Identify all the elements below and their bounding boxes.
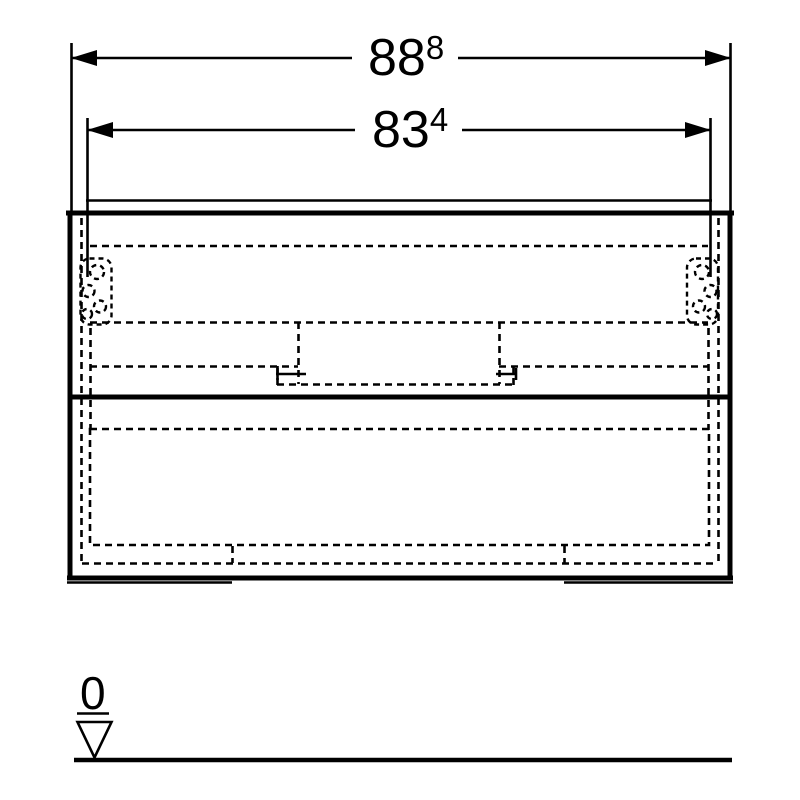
dim-cutout-value: 83	[372, 101, 430, 159]
dim-overall-arrowhead-left	[71, 50, 97, 66]
inner-side-hidden-lines	[82, 218, 719, 563]
runner-left-outline	[81, 259, 112, 325]
upper-drawer-hidden-lines	[90, 246, 708, 385]
drawing-canvas: 888 834 0	[0, 0, 800, 800]
dim-cutout-superscript: 4	[430, 101, 448, 138]
dim-cutout-arrowhead-right	[685, 122, 711, 138]
lower-drawer-box	[90, 429, 709, 545]
drawer-runner-left	[81, 259, 112, 325]
runner-right-roller-4	[707, 309, 717, 319]
dimension-cutout-width: 834	[87, 101, 711, 277]
runner-right-roller-3	[693, 301, 705, 313]
dim-cutout-arrowhead-left	[87, 122, 113, 138]
runner-right-roller-2	[705, 285, 717, 297]
datum-triangle-icon	[78, 722, 112, 758]
cabinet-body	[66, 201, 734, 583]
floor-datum: 0	[74, 667, 732, 760]
dim-overall-superscript: 8	[426, 29, 444, 66]
dim-overall-arrowhead-right	[705, 50, 731, 66]
drawer-runner-right	[687, 259, 718, 325]
datum-zero-label: 0	[80, 667, 106, 719]
dim-overall-label: 888	[368, 29, 444, 87]
vanity-cabinet-dimension-drawing: 888 834 0	[0, 0, 800, 800]
lower-drawer-hidden-lines	[82, 429, 718, 564]
runner-left-roller-3	[94, 301, 106, 313]
dim-cutout-label: 834	[372, 101, 448, 159]
runner-right-outline	[687, 259, 718, 325]
runner-left-roller-1	[90, 265, 104, 279]
runner-right-roller-1	[695, 265, 709, 279]
runner-left-roller-4	[82, 309, 92, 319]
dim-overall-value: 88	[368, 29, 426, 87]
runner-left-roller-2	[83, 285, 95, 297]
